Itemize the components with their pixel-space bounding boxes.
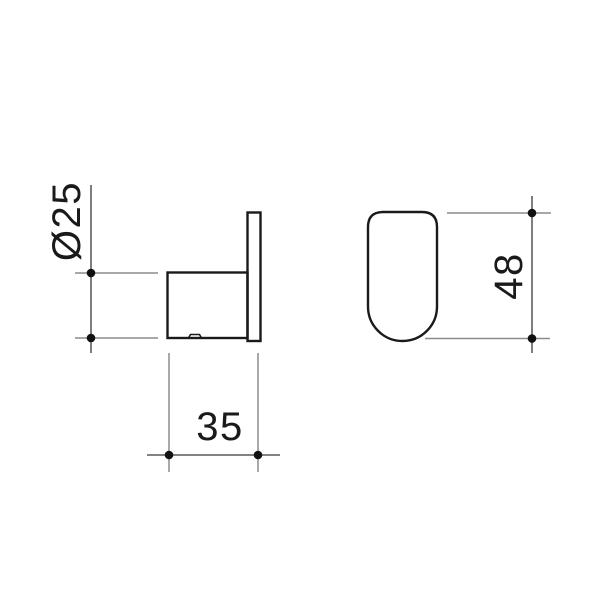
dimension-dot	[528, 334, 537, 343]
front-view	[368, 212, 437, 341]
side-view	[168, 213, 261, 342]
dimension-height: 48	[425, 196, 551, 353]
dimension-dot	[528, 209, 537, 218]
side-view-hook-body	[168, 273, 248, 339]
side-view-wall-plate	[248, 213, 261, 342]
drawing-svg: Ø25 35 48	[0, 0, 600, 600]
dimension-label-height: 48	[487, 252, 531, 300]
dimension-dot	[87, 269, 96, 278]
dimension-label-diameter: Ø25	[45, 181, 89, 261]
dimension-depth: 35	[147, 353, 280, 472]
technical-drawing-canvas: Ø25 35 48	[0, 0, 600, 600]
dimension-dot	[165, 451, 174, 460]
front-view-outline	[368, 212, 437, 341]
dimension-dot	[254, 451, 263, 460]
dimension-dot	[87, 334, 96, 343]
dimension-diameter: Ø25	[45, 181, 158, 353]
dimension-label-depth: 35	[196, 405, 244, 449]
